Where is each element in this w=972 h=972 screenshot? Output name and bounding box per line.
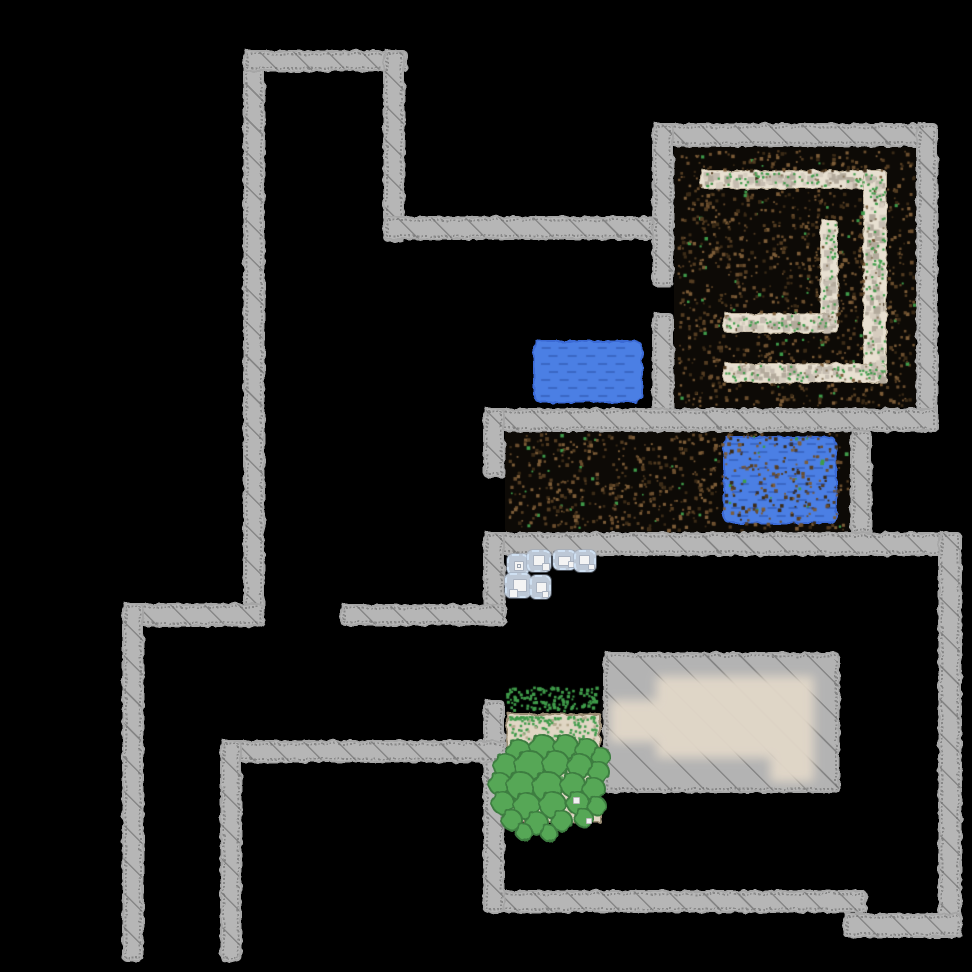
item-square [514, 561, 524, 571]
grass-scatter [506, 686, 600, 714]
path-inner-vert [820, 220, 838, 333]
ground-item[interactable] [527, 550, 551, 572]
wall-room1-west-lower [652, 313, 674, 432]
bush [529, 734, 557, 762]
path-inner-horz [723, 313, 838, 333]
bush [567, 753, 593, 779]
item-square [542, 563, 550, 571]
bush [574, 808, 594, 828]
bush [542, 750, 570, 778]
bush [588, 761, 610, 783]
wall-tower-east [383, 50, 405, 242]
ground-item[interactable] [507, 554, 529, 575]
wall-room3-west-lower [483, 700, 505, 913]
bush [515, 823, 533, 841]
bush [501, 809, 523, 831]
sand-patch [506, 713, 601, 823]
decor-layer [0, 0, 972, 972]
room1-dirt-floor [674, 147, 916, 408]
wall-room2-east-divider [850, 430, 872, 534]
terrain-texture-canvas [0, 0, 972, 972]
wall-layer [0, 0, 972, 972]
furniture-part [656, 676, 814, 758]
wall-room1-north [652, 123, 938, 147]
wall-room3-west-upper [483, 532, 505, 626]
item-square [579, 555, 590, 565]
item-square [542, 591, 549, 598]
item-square [513, 579, 527, 592]
wall-room2-west-stub [483, 408, 505, 478]
game-map-viewport[interactable] [0, 0, 972, 972]
bush [587, 796, 607, 816]
wall-tower-north [243, 50, 408, 72]
room2-dirt-floor [505, 430, 850, 532]
item-square [558, 556, 571, 566]
bush [532, 771, 564, 803]
path-south [723, 363, 887, 383]
wall-room1-east [916, 123, 938, 432]
bush [493, 753, 519, 779]
ground-item[interactable] [553, 550, 576, 570]
wall-west-arm [122, 603, 265, 627]
furniture-part [770, 740, 814, 782]
path-east [863, 170, 887, 383]
wall-room3-south-step [843, 913, 962, 938]
ground-item[interactable] [505, 573, 531, 598]
wall-corridor-north [340, 604, 507, 626]
bush [591, 747, 611, 767]
bush [560, 772, 586, 798]
bush [506, 771, 536, 801]
ground-item[interactable] [530, 575, 551, 599]
bush [514, 750, 546, 782]
wall-room3-north [483, 532, 962, 556]
item-square [536, 582, 547, 593]
path-top [700, 170, 887, 189]
bush [582, 777, 606, 801]
wall-room1-south [483, 408, 938, 432]
bush [539, 791, 567, 819]
stone-platform [603, 652, 840, 793]
item-square [588, 564, 595, 570]
wall-arm-east [383, 216, 654, 240]
wall-west-wall [122, 603, 144, 962]
furniture-part [610, 700, 658, 742]
wall-corridor-south [220, 740, 507, 763]
bush-gap-item [586, 818, 592, 824]
item-square [533, 555, 545, 566]
water-pool-east [723, 436, 837, 524]
item-square [568, 561, 575, 568]
ground-item[interactable] [574, 550, 596, 572]
bush [575, 738, 599, 762]
bush [491, 791, 515, 815]
bush [488, 772, 512, 796]
bush [551, 810, 573, 832]
bush [540, 824, 558, 842]
wall-south-wall [220, 740, 242, 962]
item-square [509, 589, 518, 598]
bush [566, 791, 590, 815]
bush [506, 739, 532, 765]
wall-room1-west-upper [652, 123, 674, 287]
bush [553, 734, 579, 760]
bush-gap-item [573, 797, 580, 804]
terrain-floor-layer [0, 0, 972, 972]
bush [525, 811, 549, 835]
wall-map-east [938, 532, 962, 938]
water-pool-west [533, 340, 643, 403]
wall-tower-west [243, 50, 265, 627]
wall-room3-south [483, 890, 867, 913]
bush [513, 792, 541, 820]
blurred-structure [0, 0, 972, 972]
